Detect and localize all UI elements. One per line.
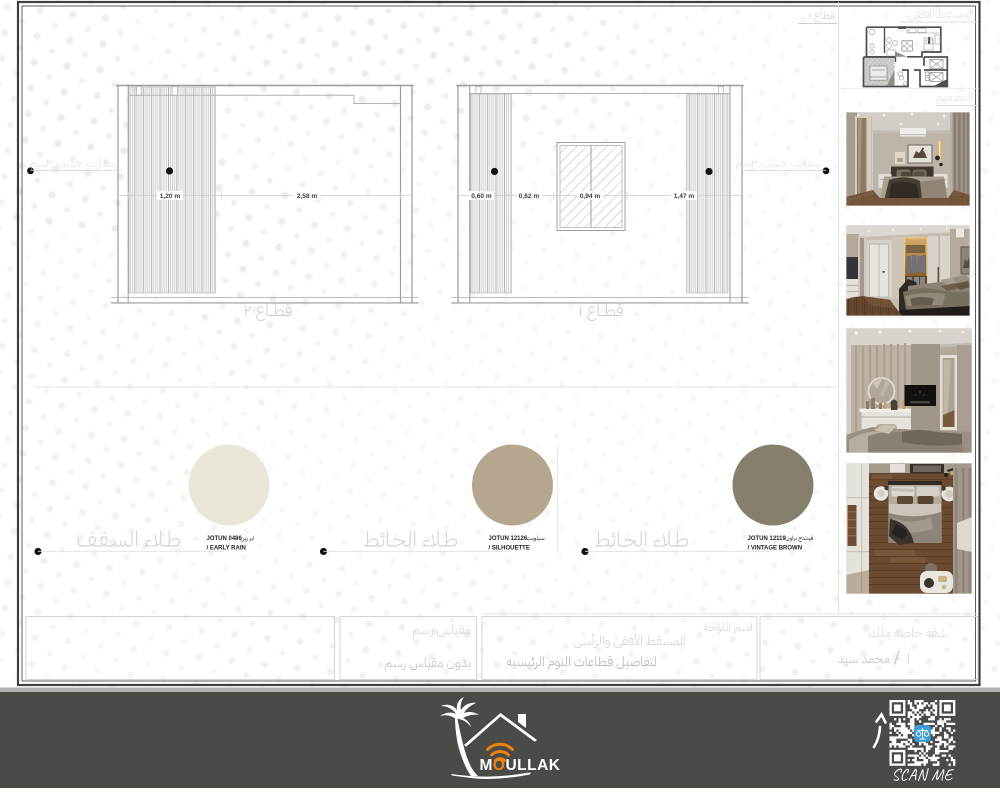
svg-text:JOTUN 12126: JOTUN 12126 bbox=[489, 536, 528, 542]
svg-text:1,47 m: 1,47 m bbox=[674, 193, 695, 200]
svg-text:JOTUN 12119: JOTUN 12119 bbox=[748, 536, 787, 542]
svg-text:/ EARLY RAIN: / EARLY RAIN bbox=[207, 546, 246, 552]
svg-text:/ VINTAGE BROWN: / VINTAGE BROWN bbox=[748, 546, 803, 552]
svg-text:1,20 m: 1,20 m bbox=[160, 193, 181, 200]
svg-text:MOULLAK: MOULLAK bbox=[479, 757, 560, 774]
svg-text:0,62 m: 0,62 m bbox=[519, 193, 540, 200]
svg-text:JOTUN 0486: JOTUN 0486 bbox=[207, 536, 243, 542]
svg-text:0,94 m: 0,94 m bbox=[580, 193, 601, 200]
svg-text:2,58 m: 2,58 m bbox=[297, 193, 318, 200]
svg-text:0,60 m: 0,60 m bbox=[471, 193, 492, 200]
svg-text:/ SILHOUETTE: / SILHOUETTE bbox=[489, 546, 530, 552]
